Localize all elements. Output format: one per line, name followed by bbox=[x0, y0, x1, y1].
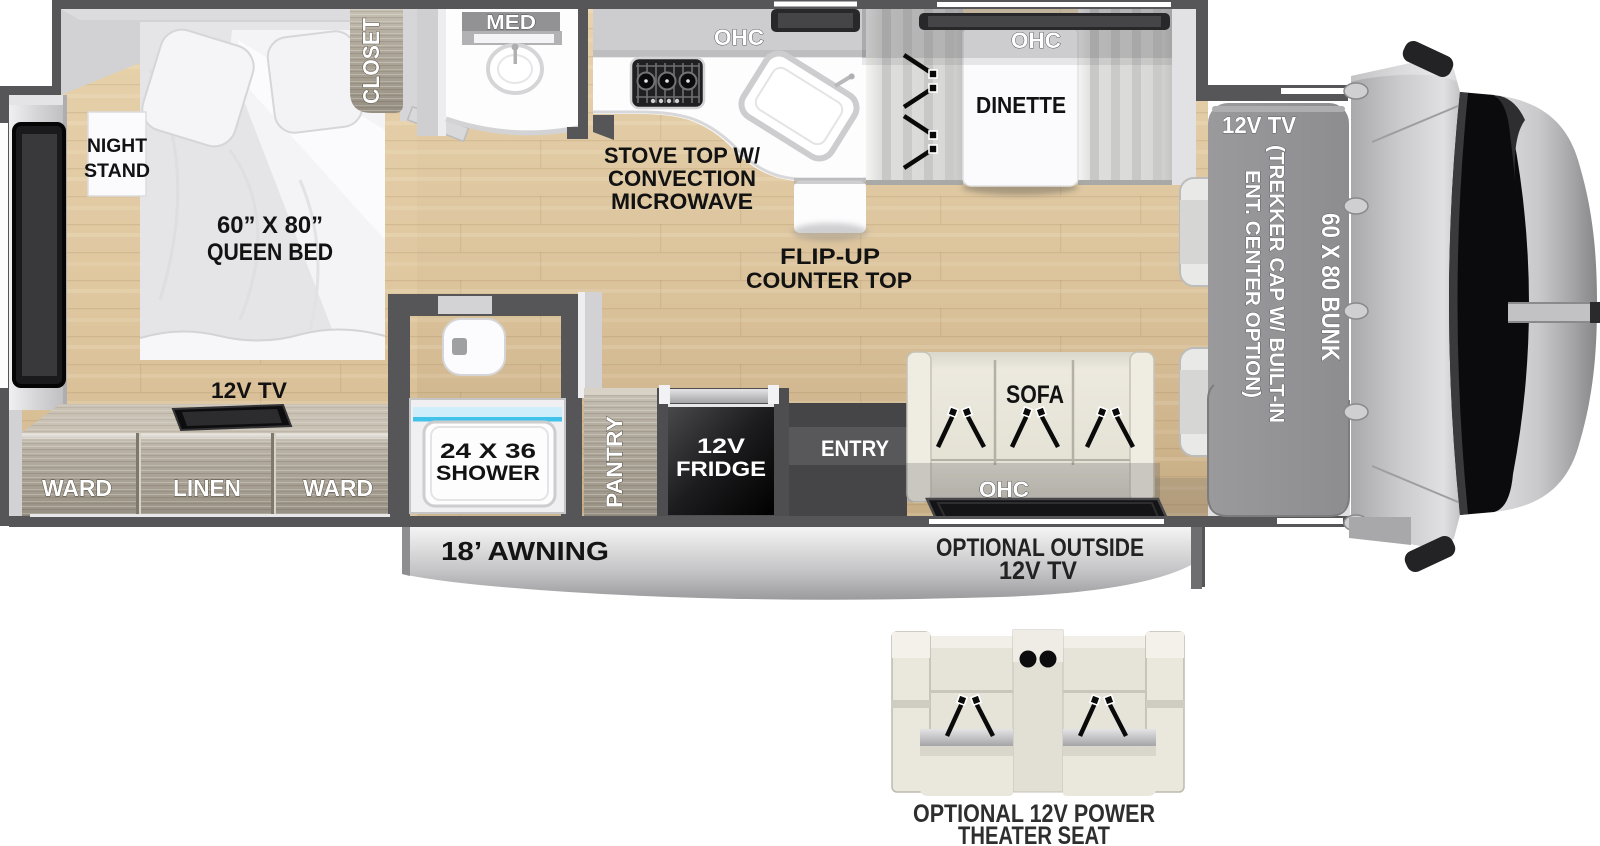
svg-text:MICROWAVE: MICROWAVE bbox=[611, 189, 753, 214]
svg-text:12V: 12V bbox=[697, 435, 745, 458]
svg-text:(TREKKER CAP W/ BUILT-IN: (TREKKER CAP W/ BUILT-IN bbox=[1265, 145, 1287, 423]
svg-text:STAND: STAND bbox=[84, 161, 150, 182]
svg-text:SOFA: SOFA bbox=[1006, 381, 1064, 409]
svg-text:WARD: WARD bbox=[303, 475, 373, 501]
svg-text:SHOWER: SHOWER bbox=[436, 462, 540, 485]
svg-text:12V TV: 12V TV bbox=[999, 557, 1077, 585]
svg-text:FRIDGE: FRIDGE bbox=[676, 458, 766, 481]
svg-text:18’ AWNING: 18’ AWNING bbox=[441, 536, 609, 566]
svg-text:STOVE TOP W/: STOVE TOP W/ bbox=[604, 143, 760, 168]
svg-text:OHC: OHC bbox=[714, 25, 764, 50]
svg-text:60” X 80”: 60” X 80” bbox=[217, 212, 323, 239]
svg-text:12V TV: 12V TV bbox=[211, 378, 287, 403]
svg-text:THEATER SEAT: THEATER SEAT bbox=[958, 822, 1110, 846]
svg-text:CLOSET: CLOSET bbox=[358, 18, 384, 104]
svg-text:LINEN: LINEN bbox=[173, 475, 241, 501]
svg-text:QUEEN BED: QUEEN BED bbox=[207, 239, 333, 266]
svg-text:OHC: OHC bbox=[1011, 28, 1061, 53]
svg-text:60 X 80 BUNK: 60 X 80 BUNK bbox=[1316, 213, 1344, 361]
svg-text:COUNTER TOP: COUNTER TOP bbox=[746, 268, 912, 293]
svg-text:12V TV: 12V TV bbox=[1222, 112, 1297, 138]
svg-text:CONVECTION: CONVECTION bbox=[608, 166, 756, 191]
svg-text:ENT. CENTER OPTION): ENT. CENTER OPTION) bbox=[1241, 170, 1263, 398]
svg-text:PANTRY: PANTRY bbox=[602, 416, 627, 508]
svg-text:FLIP-UP: FLIP-UP bbox=[780, 244, 880, 269]
svg-text:DINETTE: DINETTE bbox=[976, 92, 1066, 118]
svg-text:WARD: WARD bbox=[42, 475, 112, 501]
svg-text:ENTRY: ENTRY bbox=[821, 436, 889, 461]
svg-text:MED: MED bbox=[486, 12, 536, 34]
svg-text:24 X 36: 24 X 36 bbox=[440, 440, 536, 463]
svg-text:NIGHT: NIGHT bbox=[87, 136, 147, 157]
